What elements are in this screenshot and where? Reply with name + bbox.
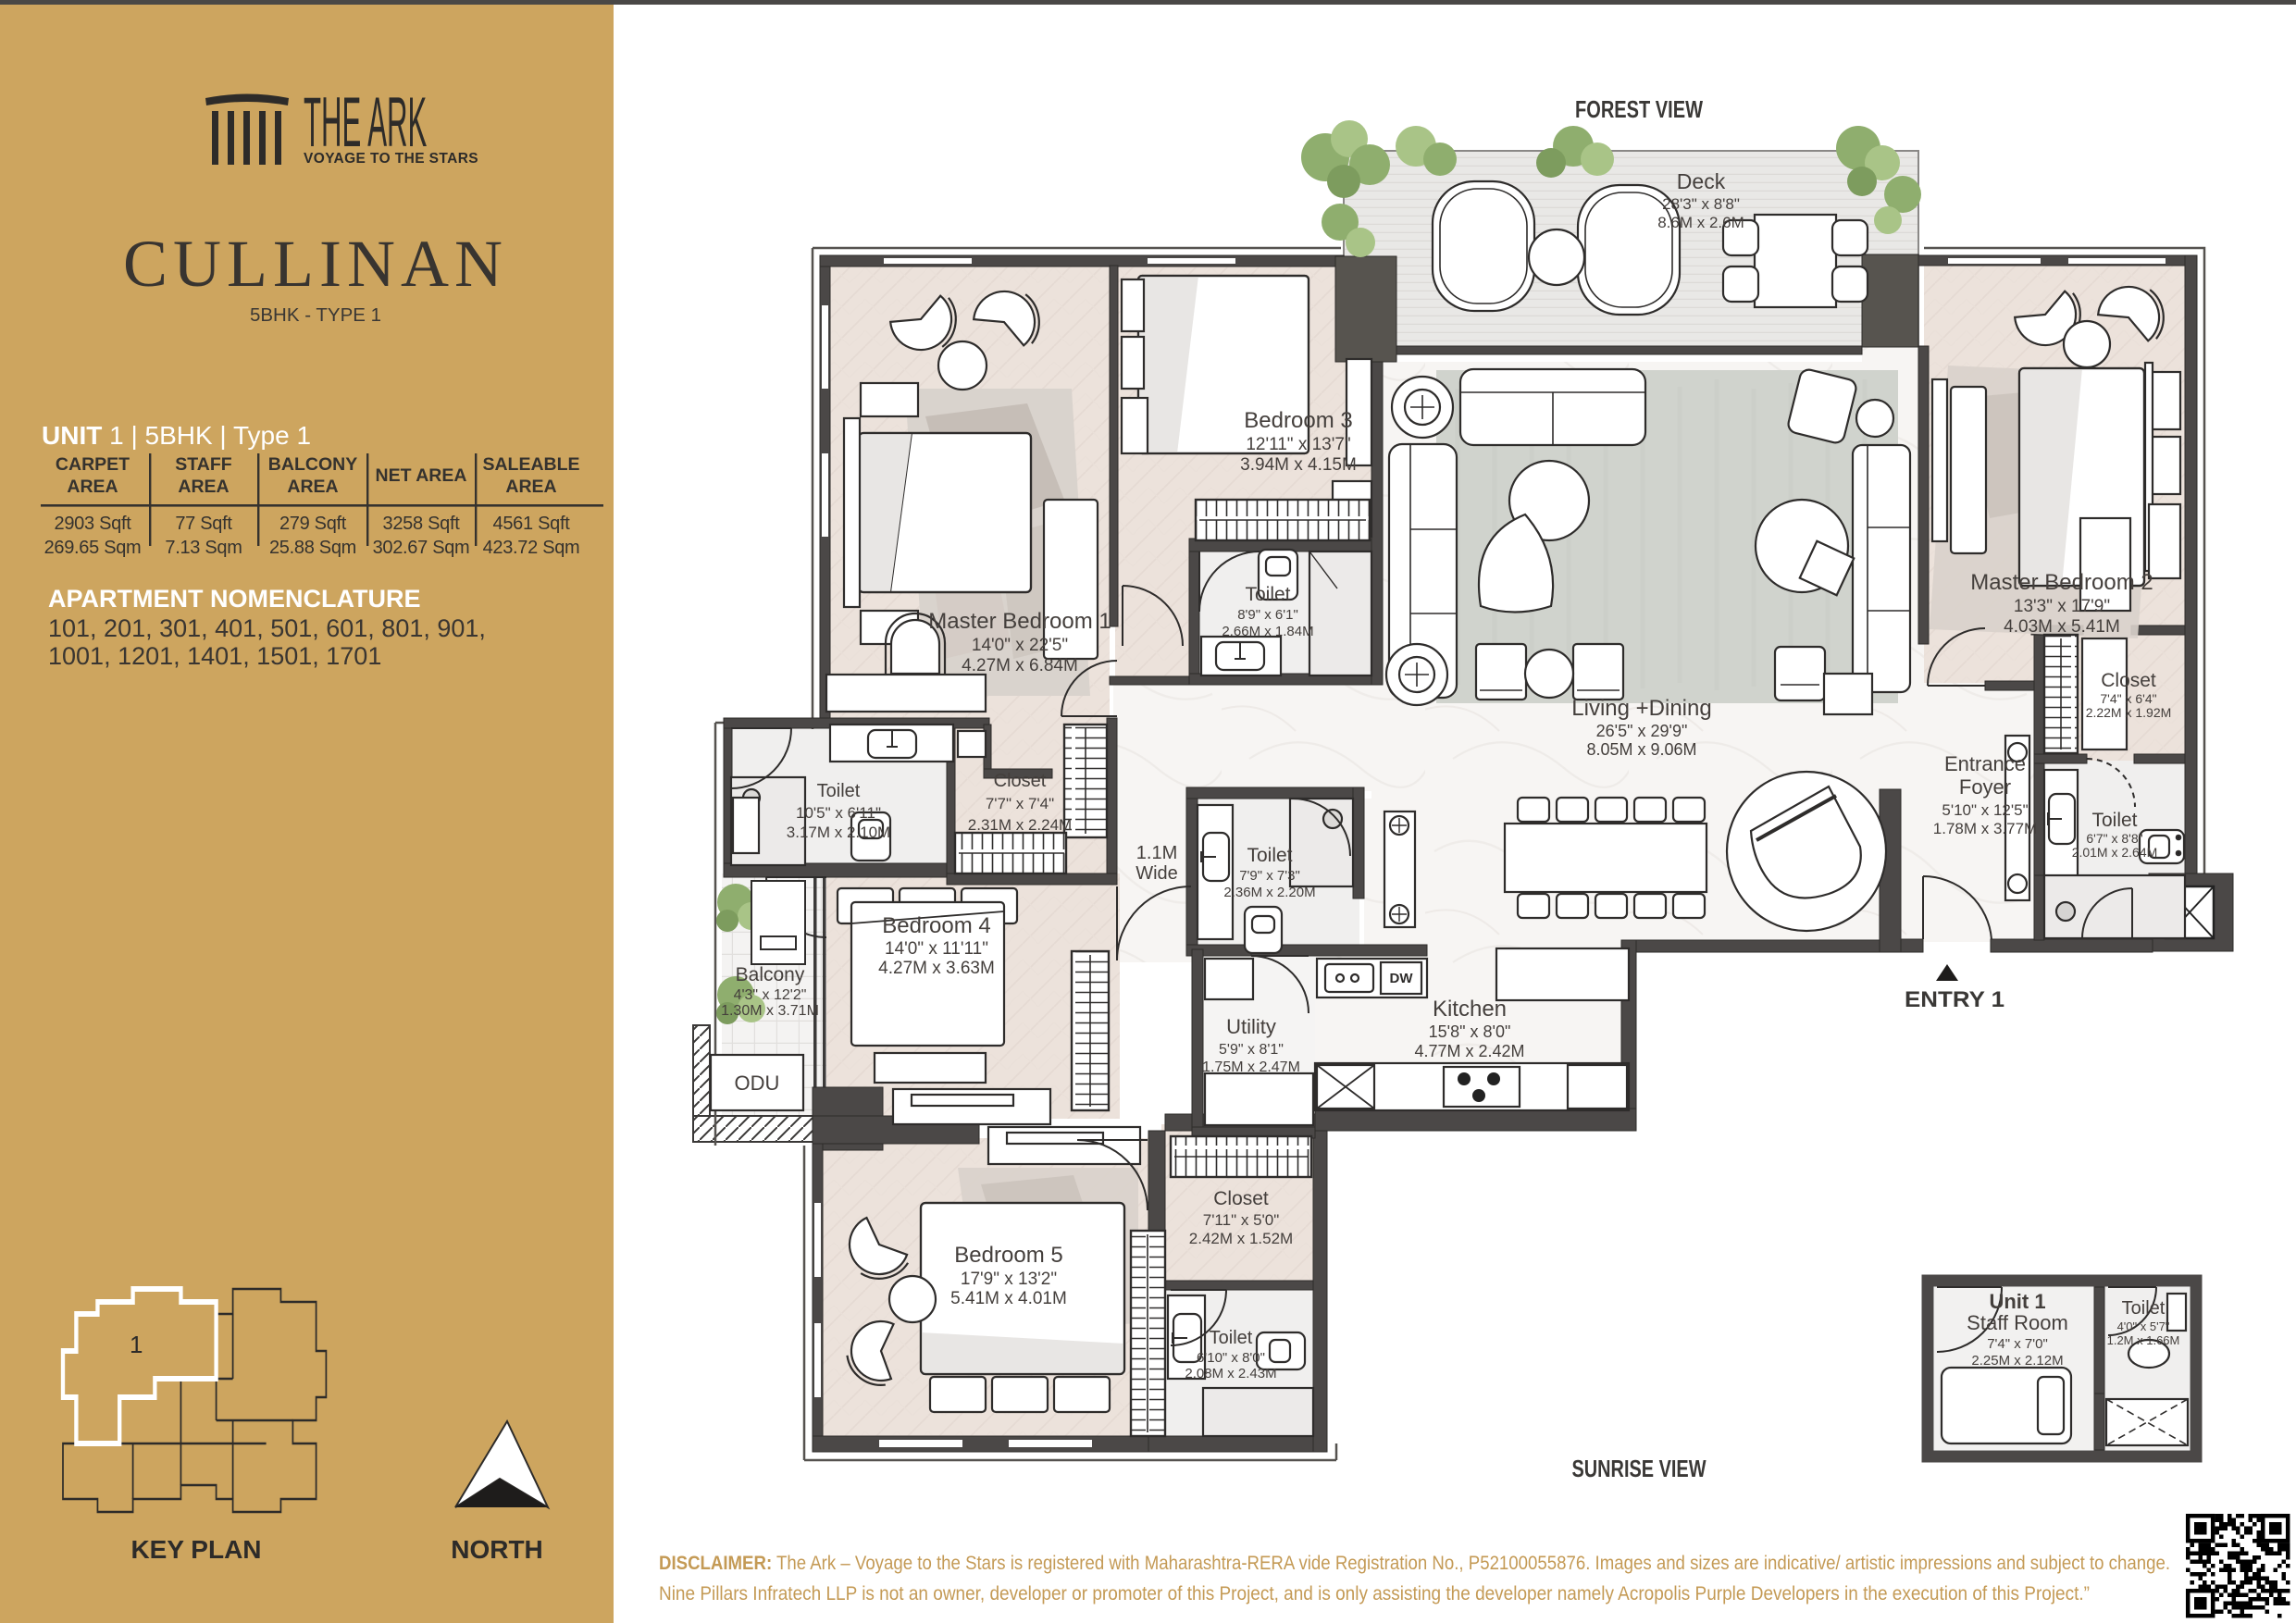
svg-text:2.31M x 2.24M: 2.31M x 2.24M bbox=[968, 816, 1072, 834]
svg-text:Nine Pillars Infratech LLP is: Nine Pillars Infratech LLP is not an own… bbox=[659, 1583, 2090, 1604]
svg-text:4561 Sqft: 4561 Sqft bbox=[493, 514, 571, 534]
svg-text:12'11" x 13'7": 12'11" x 13'7" bbox=[1246, 435, 1350, 454]
svg-text:302.67 Sqm: 302.67 Sqm bbox=[373, 538, 470, 558]
svg-text:4.03M x 5.41M: 4.03M x 5.41M bbox=[2004, 617, 2120, 637]
svg-text:4.27M x 3.63M: 4.27M x 3.63M bbox=[878, 959, 995, 978]
svg-text:DW: DW bbox=[1390, 971, 1414, 986]
svg-text:10'5" x 6'11": 10'5" x 6'11" bbox=[796, 804, 881, 822]
svg-text:Closet: Closet bbox=[994, 771, 1047, 791]
svg-text:Kitchen: Kitchen bbox=[1433, 997, 1507, 1022]
svg-text:Bedroom 5: Bedroom 5 bbox=[954, 1243, 1062, 1268]
svg-text:2903 Sqft: 2903 Sqft bbox=[55, 514, 132, 534]
svg-text:CARPET: CARPET bbox=[56, 454, 130, 475]
svg-text:Deck: Deck bbox=[1677, 169, 1726, 193]
svg-text:STAFF: STAFF bbox=[175, 454, 231, 475]
svg-text:28'3" x 8'8": 28'3" x 8'8" bbox=[1662, 195, 1740, 213]
svg-text:26'5" x 29'9": 26'5" x 29'9" bbox=[1596, 722, 1688, 740]
svg-text:15'8" x 8'0": 15'8" x 8'0" bbox=[1429, 1022, 1511, 1041]
svg-text:AREA: AREA bbox=[505, 477, 556, 497]
svg-text:UNIT 1 | 5BHK | Type 1: UNIT 1 | 5BHK | Type 1 bbox=[42, 421, 311, 450]
svg-text:ENTRY 1: ENTRY 1 bbox=[1905, 987, 2004, 1012]
svg-text:8.05M x 9.06M: 8.05M x 9.06M bbox=[1586, 740, 1696, 759]
svg-text:1.75M x 2.47M: 1.75M x 2.47M bbox=[1202, 1059, 1300, 1075]
svg-text:5'9" x 8'1": 5'9" x 8'1" bbox=[1219, 1042, 1284, 1058]
svg-text:NET AREA: NET AREA bbox=[376, 465, 467, 486]
svg-text:269.65 Sqm: 269.65 Sqm bbox=[44, 538, 142, 558]
svg-text:FOREST VIEW: FOREST VIEW bbox=[1575, 95, 1703, 123]
svg-text:KEY PLAN: KEY PLAN bbox=[130, 1535, 261, 1564]
svg-text:3.17M x 2.10M: 3.17M x 2.10M bbox=[787, 824, 890, 841]
svg-text:2.42M x 1.52M: 2.42M x 1.52M bbox=[1189, 1230, 1293, 1247]
svg-text:Closet: Closet bbox=[1213, 1188, 1269, 1209]
svg-text:1: 1 bbox=[130, 1331, 143, 1358]
svg-text:7'7" x 7'4": 7'7" x 7'4" bbox=[986, 795, 1054, 812]
svg-text:17'9" x 13'2": 17'9" x 13'2" bbox=[961, 1270, 1057, 1289]
svg-text:8.6M x 2.6M: 8.6M x 2.6M bbox=[1657, 214, 1744, 231]
svg-text:Balcony: Balcony bbox=[736, 964, 805, 985]
svg-text:4.27M x 6.84M: 4.27M x 6.84M bbox=[962, 656, 1078, 675]
svg-text:2.01M x 2.64M: 2.01M x 2.64M bbox=[2072, 845, 2158, 860]
svg-text:423.72 Sqm: 423.72 Sqm bbox=[483, 538, 580, 558]
svg-text:7'4" x 6'4": 7'4" x 6'4" bbox=[2100, 691, 2156, 706]
svg-text:4'0" x 5'7": 4'0" x 5'7" bbox=[2117, 1319, 2170, 1333]
svg-text:Utility: Utility bbox=[1226, 1015, 1276, 1038]
svg-text:5BHK - TYPE 1: 5BHK - TYPE 1 bbox=[250, 304, 381, 326]
svg-text:Bedroom 4: Bedroom 4 bbox=[882, 913, 990, 938]
svg-text:Toilet: Toilet bbox=[1245, 584, 1290, 605]
svg-text:77 Sqft: 77 Sqft bbox=[175, 514, 232, 534]
svg-text:CULLINAN: CULLINAN bbox=[123, 227, 508, 301]
svg-text:Toilet: Toilet bbox=[2091, 810, 2137, 831]
svg-text:SUNRISE VIEW: SUNRISE VIEW bbox=[1572, 1455, 1706, 1482]
svg-text:7'11" x 5'0": 7'11" x 5'0" bbox=[1203, 1211, 1280, 1229]
svg-text:Entrance: Entrance bbox=[1944, 752, 2026, 775]
svg-text:BALCONY: BALCONY bbox=[268, 454, 357, 475]
svg-text:3.94M x 4.15M: 3.94M x 4.15M bbox=[1240, 455, 1357, 475]
svg-text:8'9" x 6'1": 8'9" x 6'1" bbox=[1237, 607, 1298, 623]
svg-text:1.1M: 1.1M bbox=[1136, 843, 1177, 863]
svg-text:NORTH: NORTH bbox=[451, 1535, 543, 1564]
svg-text:Bedroom 3: Bedroom 3 bbox=[1244, 408, 1352, 433]
svg-text:14'0" x 22'5": 14'0" x 22'5" bbox=[972, 636, 1068, 655]
svg-text:7'4" x 7'0": 7'4" x 7'0" bbox=[1987, 1336, 2048, 1352]
svg-text:Master Bedroom 1: Master Bedroom 1 bbox=[928, 609, 1111, 634]
svg-text:3258 Sqft: 3258 Sqft bbox=[383, 514, 461, 534]
svg-text:4'3" x 12'2": 4'3" x 12'2" bbox=[734, 987, 807, 1003]
svg-text:101, 201, 301, 401, 501, 601,: 101, 201, 301, 401, 501, 601, 801, 901, bbox=[48, 614, 486, 642]
svg-text:2.22M x 1.92M: 2.22M x 1.92M bbox=[2086, 705, 2172, 720]
svg-text:7.13 Sqm: 7.13 Sqm bbox=[165, 538, 242, 558]
svg-text:6'7" x 8'8": 6'7" x 8'8" bbox=[2086, 831, 2142, 846]
svg-text:APARTMENT NOMENCLATURE: APARTMENT NOMENCLATURE bbox=[48, 585, 420, 613]
svg-text:1.30M x 3.71M: 1.30M x 3.71M bbox=[721, 1003, 819, 1019]
svg-text:Toilet: Toilet bbox=[817, 781, 861, 801]
svg-text:4.77M x 2.42M: 4.77M x 2.42M bbox=[1414, 1042, 1524, 1060]
svg-text:Toilet: Toilet bbox=[2122, 1298, 2166, 1319]
svg-text:DISCLAIMER: The Ark – Voyage t: DISCLAIMER: The Ark – Voyage to the Star… bbox=[659, 1553, 2170, 1574]
svg-text:Closet: Closet bbox=[2101, 670, 2156, 691]
svg-text:2.66M x 1.84M: 2.66M x 1.84M bbox=[1222, 624, 1313, 639]
svg-text:SALEABLE: SALEABLE bbox=[482, 454, 579, 475]
svg-text:Living +Dining: Living +Dining bbox=[1571, 696, 1711, 721]
svg-text:2.08M x 2.43M: 2.08M x 2.43M bbox=[1185, 1366, 1276, 1381]
svg-text:AREA: AREA bbox=[67, 477, 118, 497]
svg-text:5.41M x 4.01M: 5.41M x 4.01M bbox=[950, 1289, 1067, 1308]
svg-text:Foyer: Foyer bbox=[1959, 775, 2011, 799]
svg-text:5'10" x 12'5": 5'10" x 12'5" bbox=[1942, 801, 2028, 819]
svg-text:Staff Room: Staff Room bbox=[1967, 1311, 2068, 1334]
svg-text:2.25M x 2.12M: 2.25M x 2.12M bbox=[1971, 1353, 2063, 1369]
svg-text:2.36M x 2.20M: 2.36M x 2.20M bbox=[1223, 885, 1315, 900]
svg-text:1.2M x 1.66M: 1.2M x 1.66M bbox=[2107, 1333, 2180, 1347]
svg-text:Toilet: Toilet bbox=[1247, 845, 1292, 866]
svg-text:AREA: AREA bbox=[178, 477, 229, 497]
svg-text:13'3" x 17'9": 13'3" x 17'9" bbox=[2014, 597, 2110, 616]
svg-text:AREA: AREA bbox=[287, 477, 338, 497]
svg-text:Master Bedroom 2: Master Bedroom 2 bbox=[1970, 570, 2153, 595]
svg-text:VOYAGE TO THE STARS: VOYAGE TO THE STARS bbox=[304, 151, 478, 167]
svg-text:Unit 1: Unit 1 bbox=[1989, 1290, 2045, 1313]
svg-text:1001, 1201, 1401, 1501, 1701: 1001, 1201, 1401, 1501, 1701 bbox=[48, 642, 381, 670]
svg-text:25.88 Sqm: 25.88 Sqm bbox=[269, 538, 356, 558]
svg-text:1.78M x 3.77M: 1.78M x 3.77M bbox=[1933, 820, 2037, 837]
svg-text:ODU: ODU bbox=[735, 1072, 780, 1095]
svg-text:7'9" x 7'3": 7'9" x 7'3" bbox=[1239, 868, 1300, 884]
svg-text:Toilet: Toilet bbox=[1210, 1328, 1253, 1348]
svg-text:Wide: Wide bbox=[1136, 863, 1178, 884]
svg-text:14'0" x 11'11": 14'0" x 11'11" bbox=[885, 939, 988, 959]
svg-text:279 Sqft: 279 Sqft bbox=[279, 514, 347, 534]
svg-text:6'10" x 8'0": 6'10" x 8'0" bbox=[1197, 1350, 1265, 1366]
